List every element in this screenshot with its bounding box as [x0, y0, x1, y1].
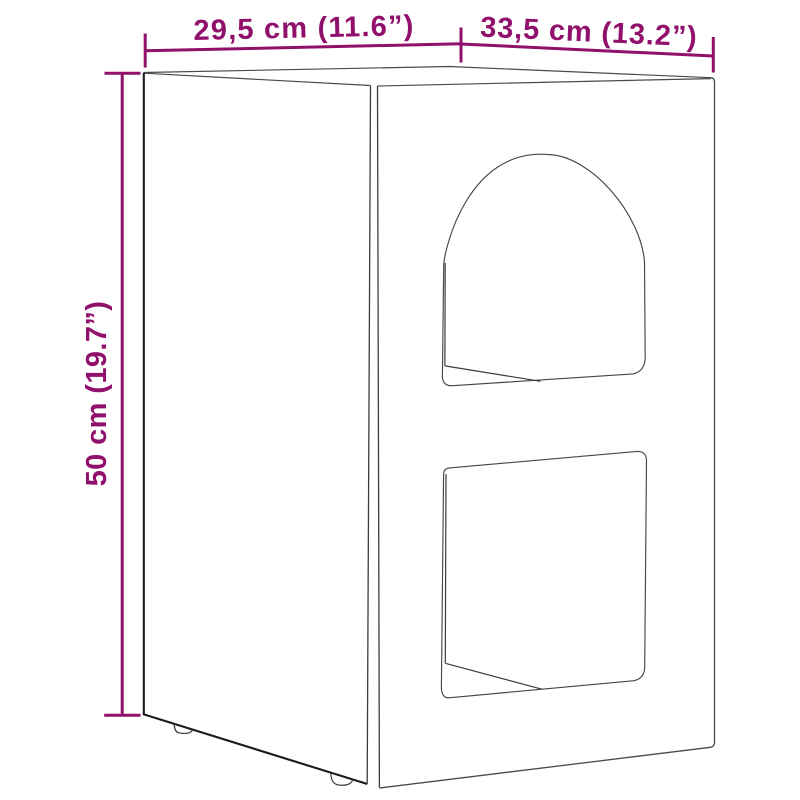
svg-text:29,5 cm (11.6”): 29,5 cm (11.6”) [193, 10, 415, 47]
svg-text:50 cm (19.7”): 50 cm (19.7”) [81, 301, 113, 487]
